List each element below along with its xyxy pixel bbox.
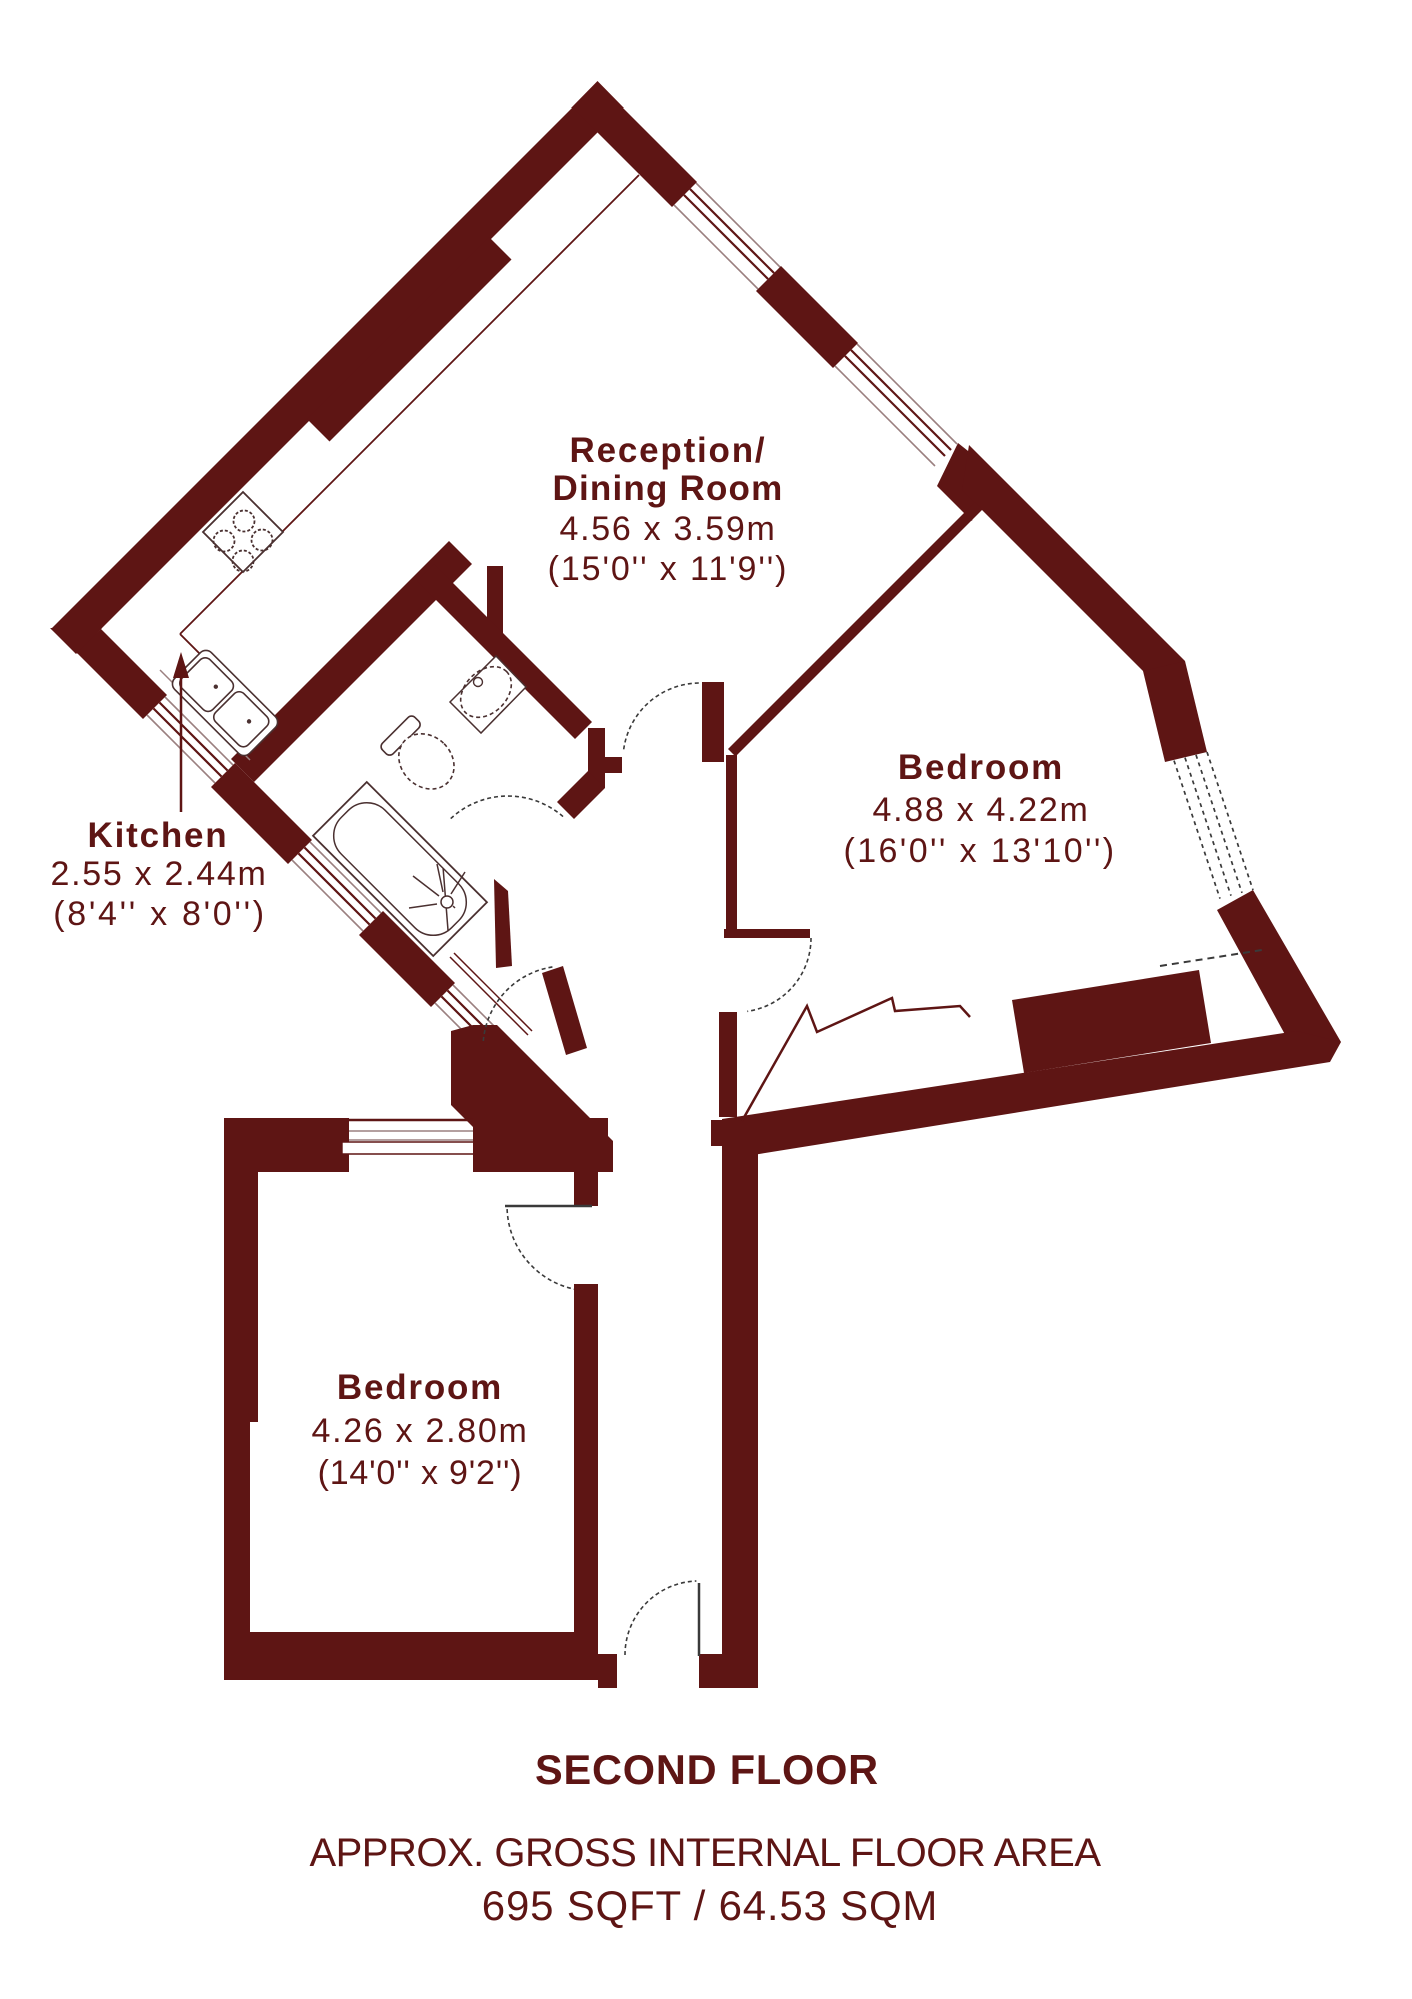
svg-text:Bedroom: Bedroom: [337, 1368, 503, 1407]
svg-text:(16'0'' x 13'10''): (16'0'' x 13'10''): [843, 832, 1116, 870]
svg-text:Kitchen: Kitchen: [88, 816, 229, 855]
svg-text:695 SQFT / 64.53 SQM: 695 SQFT / 64.53 SQM: [482, 1882, 938, 1929]
svg-text:(8'4'' x 8'0''): (8'4'' x 8'0''): [53, 895, 267, 933]
svg-text:4.56 x 3.59m: 4.56 x 3.59m: [560, 510, 777, 548]
svg-text:SECOND FLOOR: SECOND FLOOR: [535, 1746, 879, 1793]
svg-text:4.88 x 4.22m: 4.88 x 4.22m: [873, 791, 1090, 829]
svg-text:Dining Room: Dining Room: [553, 469, 784, 508]
svg-text:2.55 x 2.44m: 2.55 x 2.44m: [51, 855, 268, 893]
svg-text:APPROX. GROSS INTERNAL FLOOR A: APPROX. GROSS INTERNAL FLOOR AREA: [309, 1831, 1101, 1875]
svg-text:(14'0'' x 9'2''): (14'0'' x 9'2''): [318, 1454, 523, 1492]
svg-text:(15'0'' x 11'9''): (15'0'' x 11'9''): [548, 550, 789, 588]
svg-text:Bedroom: Bedroom: [898, 748, 1064, 787]
svg-text:Reception/: Reception/: [570, 431, 767, 470]
svg-text:4.26 x 2.80m: 4.26 x 2.80m: [312, 1412, 529, 1450]
